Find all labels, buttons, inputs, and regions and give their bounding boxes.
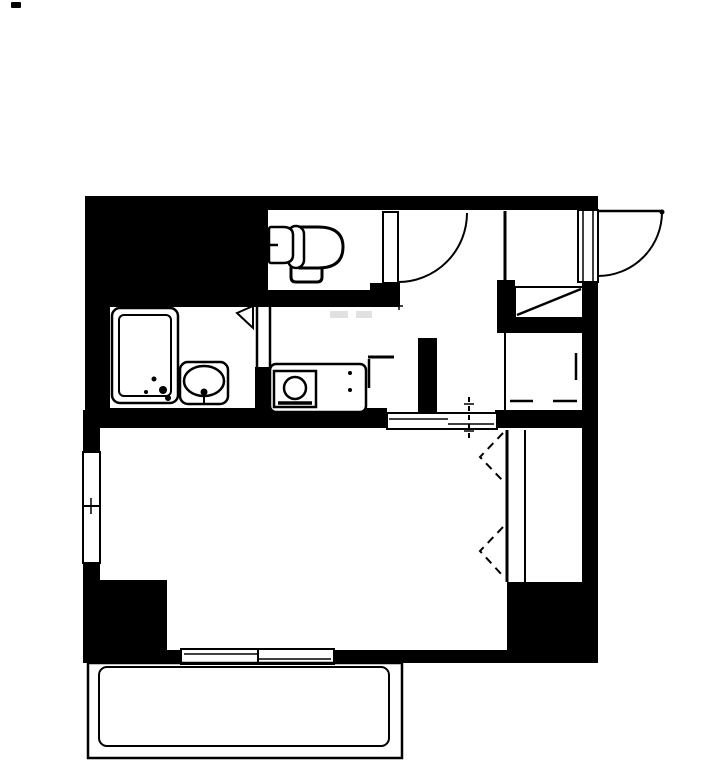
closet-door-chevron-2 (480, 527, 503, 576)
wall-corridor-bottom (495, 410, 598, 428)
faint-label-smudge-1 (330, 311, 348, 318)
balcony-inner-rail (99, 667, 389, 746)
toilet-bowl (300, 227, 343, 268)
bathtub-scan-splotch-4 (144, 390, 148, 394)
wall-top-band (265, 196, 598, 210)
bathroom-door-triangle (237, 306, 253, 328)
plan-layer (11, 2, 665, 758)
balcony-outer-rail (88, 663, 402, 758)
washbasin-drain-dot (201, 389, 208, 396)
wall-jamb-foot (370, 283, 400, 307)
bathtub-outer (112, 308, 178, 403)
bathtub-scan-splotch-1 (159, 386, 167, 394)
scan-artifact-dash (11, 2, 21, 8)
wall-shoe-cabinet-bottom (497, 318, 583, 333)
sliding-door-panel (387, 413, 497, 429)
faint-label-smudge-2 (356, 311, 372, 318)
bathtub-scan-splotch-3 (152, 377, 157, 382)
entrance-door-arc (598, 212, 662, 276)
wall-bath-kitchen-pier (255, 367, 270, 410)
wall-top-left-block (85, 196, 268, 307)
closet-door-chevron-1 (480, 433, 503, 481)
entrance-door-jamb (578, 210, 598, 282)
kitchen-faucet-dot-2 (348, 388, 352, 392)
hallway-door-arc (398, 213, 467, 282)
hallway-door-jamb (383, 212, 398, 283)
kitchen-stove-burner (284, 377, 306, 399)
kitchen-faucet-dot-1 (348, 371, 352, 375)
floor-plan-svg (0, 0, 709, 783)
wall-kitchen-corridor (418, 338, 437, 413)
wall-right (582, 280, 598, 582)
floor-plan-scan (0, 0, 709, 783)
wall-left-bathroom (85, 300, 110, 410)
bathtub-scan-splotch-2 (165, 395, 171, 401)
